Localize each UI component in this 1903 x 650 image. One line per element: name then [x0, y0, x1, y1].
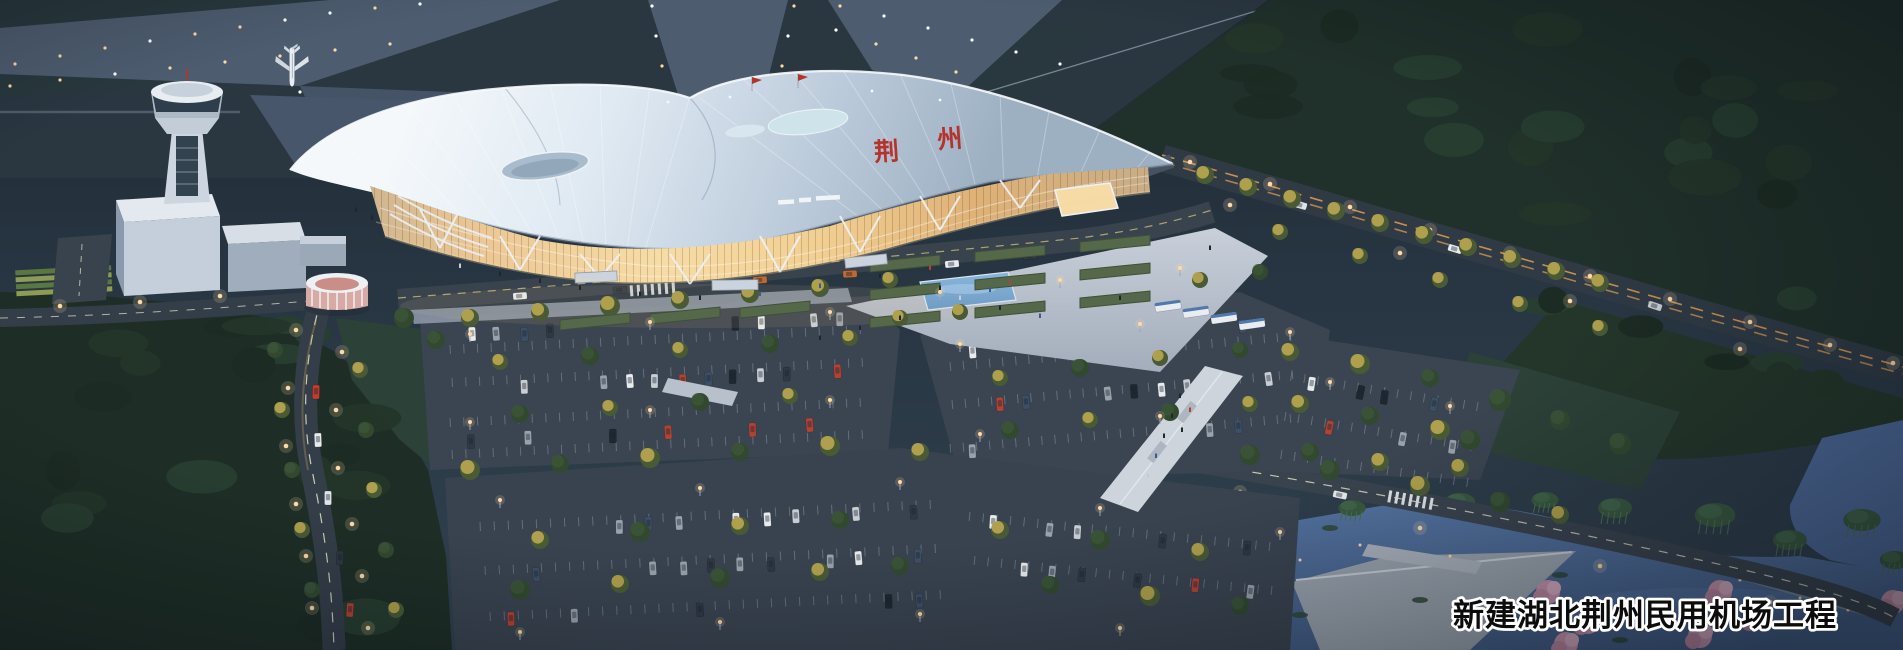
vignette-overlay: [0, 0, 1903, 650]
project-title-caption: 新建湖北荆州民用机场工程: [1453, 598, 1837, 633]
rendering-canvas: 荆 州 新建湖北荆州民用机场工程: [0, 0, 1903, 650]
airport-aerial-rendering: 荆 州 新建湖北荆州民用机场工程: [0, 0, 1903, 650]
